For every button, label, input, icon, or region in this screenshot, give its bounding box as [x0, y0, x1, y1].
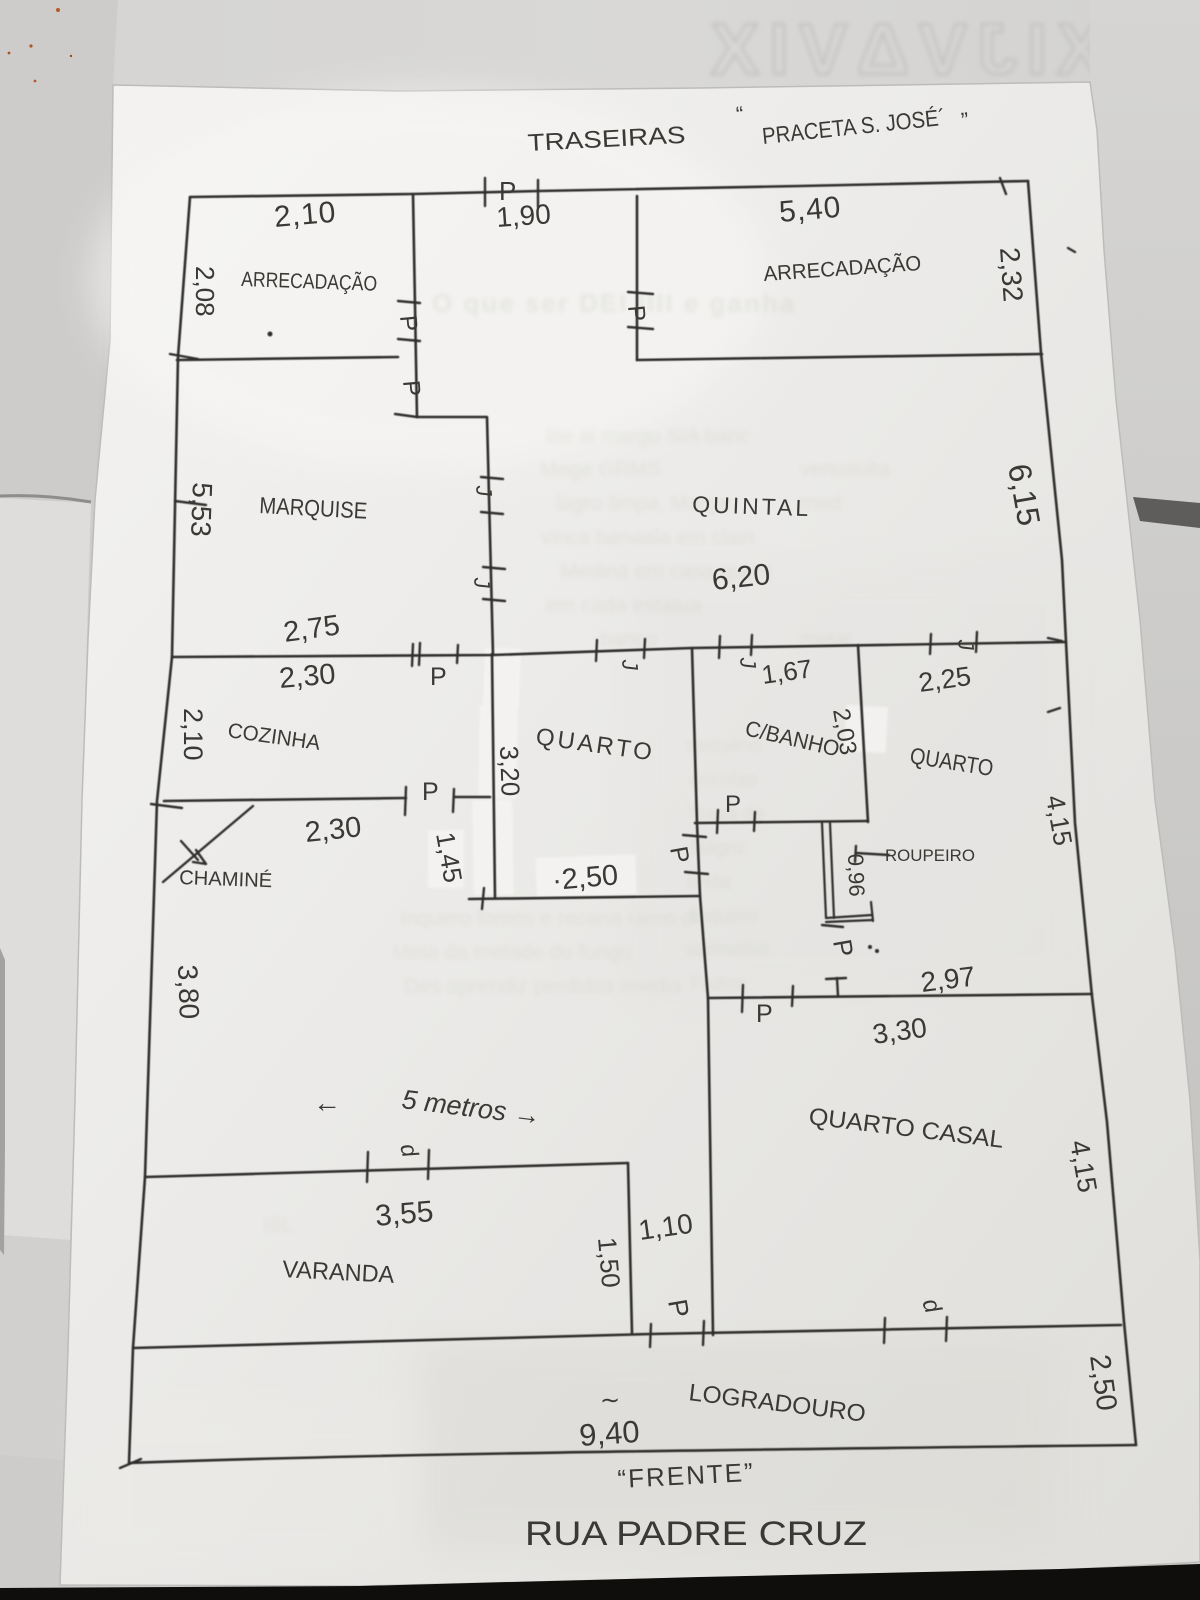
svg-text:3,55: 3,55 — [374, 1195, 435, 1233]
svg-text:“: “ — [735, 101, 745, 127]
svg-text:”: ” — [960, 107, 970, 133]
svg-text:COZINHA: COZINHA — [226, 719, 321, 755]
svg-text:“FRENTE”: “FRENTE” — [617, 1457, 756, 1494]
svg-text:5,40: 5,40 — [778, 191, 843, 229]
svg-text:3,20: 3,20 — [494, 745, 526, 797]
svg-text:PRACETA S. JOSÉ´: PRACETA S. JOSÉ´ — [761, 104, 947, 149]
svg-text:QUARTO CASAL: QUARTO CASAL — [807, 1103, 1005, 1154]
svg-text:C/BANHO: C/BANHO — [743, 716, 842, 762]
svg-text:2,10: 2,10 — [273, 196, 338, 234]
svg-text:1,45: 1,45 — [430, 830, 468, 885]
svg-text:2,08: 2,08 — [190, 266, 220, 317]
svg-text:TRASEIRAS: TRASEIRAS — [527, 122, 686, 157]
svg-text:P: P — [725, 791, 741, 818]
svg-text:J: J — [735, 655, 761, 670]
svg-text:0,96: 0,96 — [843, 853, 869, 897]
svg-text:VARANDA: VARANDA — [282, 1256, 395, 1289]
svg-text:d: d — [395, 1141, 424, 1161]
svg-text:6,20: 6,20 — [710, 558, 772, 597]
svg-text:2,30: 2,30 — [303, 811, 362, 849]
svg-text:QUARTO: QUARTO — [534, 723, 656, 766]
svg-text:6,15: 6,15 — [1001, 461, 1047, 529]
svg-text:P: P — [622, 304, 650, 322]
svg-text:P: P — [827, 937, 860, 959]
svg-text:J: J — [469, 575, 495, 590]
svg-text:J: J — [953, 637, 979, 652]
svg-text:QUARTO: QUARTO — [908, 742, 995, 781]
svg-text:ARRECADAÇÃO: ARRECADAÇÃO — [763, 251, 922, 286]
svg-text:P: P — [394, 314, 422, 332]
svg-text:P: P — [662, 1297, 695, 1320]
svg-text:P: P — [756, 1000, 773, 1028]
svg-text:P: P — [422, 778, 439, 806]
svg-text:1,90: 1,90 — [495, 198, 552, 233]
svg-text:1,67: 1,67 — [760, 653, 814, 690]
svg-text:2,32: 2,32 — [994, 246, 1029, 303]
svg-text:P: P — [397, 379, 425, 397]
svg-text:P: P — [430, 663, 447, 691]
svg-text:CHAMINÉ: CHAMINÉ — [179, 866, 273, 892]
svg-text:J: J — [617, 657, 643, 672]
svg-text:5,53: 5,53 — [185, 482, 218, 538]
svg-text:MARQUISE: MARQUISE — [259, 492, 368, 524]
svg-text:3,30: 3,30 — [871, 1012, 929, 1050]
svg-text:2,97: 2,97 — [919, 961, 977, 998]
svg-text:ARRECADAÇÃO: ARRECADAÇÃO — [241, 267, 378, 296]
svg-text:2,30: 2,30 — [278, 658, 337, 695]
svg-text:J: J — [471, 483, 497, 498]
svg-text:2,75: 2,75 — [282, 609, 342, 649]
svg-text:4,15: 4,15 — [1040, 793, 1078, 848]
svg-text:1,10: 1,10 — [637, 1208, 695, 1246]
svg-text:QUINTAL: QUINTAL — [692, 491, 812, 521]
svg-text:1,50: 1,50 — [592, 1236, 626, 1289]
svg-text:5 metros →: 5 metros → — [400, 1084, 542, 1131]
svg-text:9,40: 9,40 — [578, 1414, 641, 1453]
svg-text:4,15: 4,15 — [1064, 1138, 1103, 1195]
svg-text:←: ← — [313, 1087, 341, 1118]
svg-text:·2,50: ·2,50 — [551, 859, 620, 897]
svg-text:3,80: 3,80 — [172, 964, 205, 1020]
svg-text:LOGRADOURO: LOGRADOURO — [687, 1379, 867, 1427]
svg-text:d: d — [916, 1295, 946, 1317]
svg-text:2,10: 2,10 — [178, 708, 208, 761]
svg-text:ROUPEIRO: ROUPEIRO — [885, 846, 975, 865]
svg-text:2,50: 2,50 — [1083, 1353, 1123, 1413]
svg-text:RUA PADRE CRUZ: RUA PADRE CRUZ — [525, 1515, 867, 1553]
svg-text:∼: ∼ — [600, 1387, 620, 1414]
svg-text:2,25: 2,25 — [917, 661, 973, 698]
svg-text:P: P — [664, 844, 694, 865]
